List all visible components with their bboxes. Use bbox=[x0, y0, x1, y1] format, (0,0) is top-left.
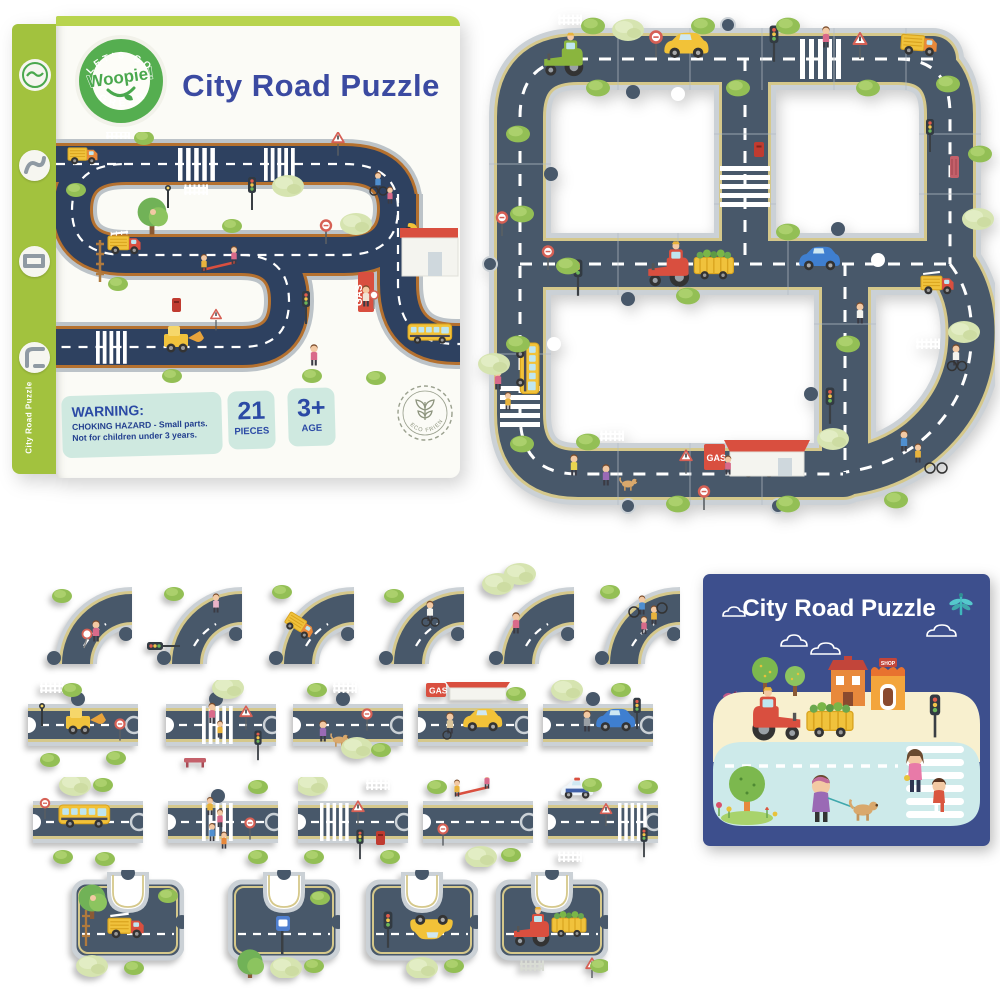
piece-curve-2 bbox=[132, 562, 242, 666]
product-photo: City Road Puzzle LET'S GO GREEN Woopie! … bbox=[0, 0, 1000, 1000]
fence bbox=[106, 132, 130, 139]
instruction-card: City Road Puzzle SHOP bbox=[703, 574, 990, 846]
piece-curve-6 bbox=[570, 562, 680, 666]
postbox bbox=[754, 142, 764, 157]
box-road-illustration: GAS bbox=[56, 132, 460, 396]
warning-panel: WARNING: CHOKING HAZARD - Small parts. N… bbox=[61, 392, 223, 458]
piece-straight-digger bbox=[28, 680, 138, 770]
tree-with-kid bbox=[138, 198, 168, 235]
piece-straight-postbox bbox=[298, 777, 408, 867]
kid bbox=[221, 832, 227, 849]
piece-junction-bus-stop bbox=[228, 870, 340, 978]
street-lamp bbox=[165, 185, 171, 208]
gas-roof bbox=[446, 682, 510, 688]
fence bbox=[520, 961, 544, 972]
piece-junction-taxi bbox=[366, 870, 478, 978]
bench bbox=[950, 156, 959, 178]
gas-sign-text: GAS bbox=[707, 453, 727, 463]
piece-curve-4 bbox=[354, 562, 464, 666]
spine-road-icon bbox=[19, 150, 50, 181]
fence bbox=[333, 683, 357, 694]
piece-straight-school-bus bbox=[33, 777, 143, 867]
postbox bbox=[172, 298, 181, 312]
box-front: LET'S GO GREEN Woopie! City Road Puzzle bbox=[56, 16, 460, 478]
piece-straight-blue-car bbox=[543, 680, 653, 770]
piece-junction-tractor bbox=[496, 870, 608, 978]
fence bbox=[366, 780, 390, 791]
box-title: City Road Puzzle bbox=[168, 68, 454, 104]
kids-seesaw bbox=[454, 777, 490, 797]
spine-road-icon bbox=[19, 246, 50, 277]
card-title: City Road Puzzle bbox=[742, 595, 935, 622]
bench bbox=[184, 758, 206, 768]
warning-heading: WARNING: bbox=[71, 400, 221, 420]
age-badge: 3+ AGE bbox=[287, 387, 336, 446]
piece-curve-3 bbox=[244, 562, 354, 666]
plant-icon bbox=[416, 400, 434, 420]
fence bbox=[600, 431, 624, 442]
spine-woopie-logo bbox=[18, 58, 52, 92]
woopie-logo: LET'S GO GREEN Woopie! bbox=[72, 32, 170, 130]
spine-title: City Road Puzzle bbox=[25, 363, 34, 473]
piece-curve-5 bbox=[464, 562, 574, 666]
postbox bbox=[376, 831, 385, 845]
product-box: City Road Puzzle LET'S GO GREEN Woopie! … bbox=[12, 16, 460, 478]
pieces-badge: 21 PIECES bbox=[227, 390, 276, 449]
shop-sign: SHOP bbox=[881, 661, 896, 667]
traffic-light bbox=[248, 177, 256, 210]
house-red bbox=[828, 656, 868, 706]
gas-station-roof bbox=[400, 228, 458, 238]
piece-junction-fire-truck bbox=[72, 870, 184, 978]
fence bbox=[558, 15, 582, 26]
eco-friendly-stamp: ECO FRIENDLY bbox=[392, 380, 458, 446]
fence bbox=[916, 339, 940, 350]
piece-straight-seesaw bbox=[423, 777, 533, 867]
fence bbox=[558, 852, 582, 863]
piece-curve-1 bbox=[22, 562, 132, 666]
piece-straight-kids-crossing bbox=[168, 777, 278, 867]
piece-straight-dog-walker bbox=[293, 680, 403, 770]
gas-building bbox=[450, 688, 506, 700]
box-spine: City Road Puzzle bbox=[12, 24, 58, 474]
fence bbox=[40, 683, 64, 694]
assembled-puzzle: GAS bbox=[478, 14, 995, 531]
piece-straight-crosswalk-family bbox=[166, 680, 276, 770]
piece-straight-police-car bbox=[548, 777, 658, 867]
gas-sign-text: GAS bbox=[429, 686, 448, 696]
box-top-edge bbox=[56, 16, 460, 26]
pedestrian bbox=[310, 344, 317, 365]
traffic-light bbox=[356, 830, 363, 860]
piece-straight-gas-station: GAS bbox=[418, 680, 528, 770]
